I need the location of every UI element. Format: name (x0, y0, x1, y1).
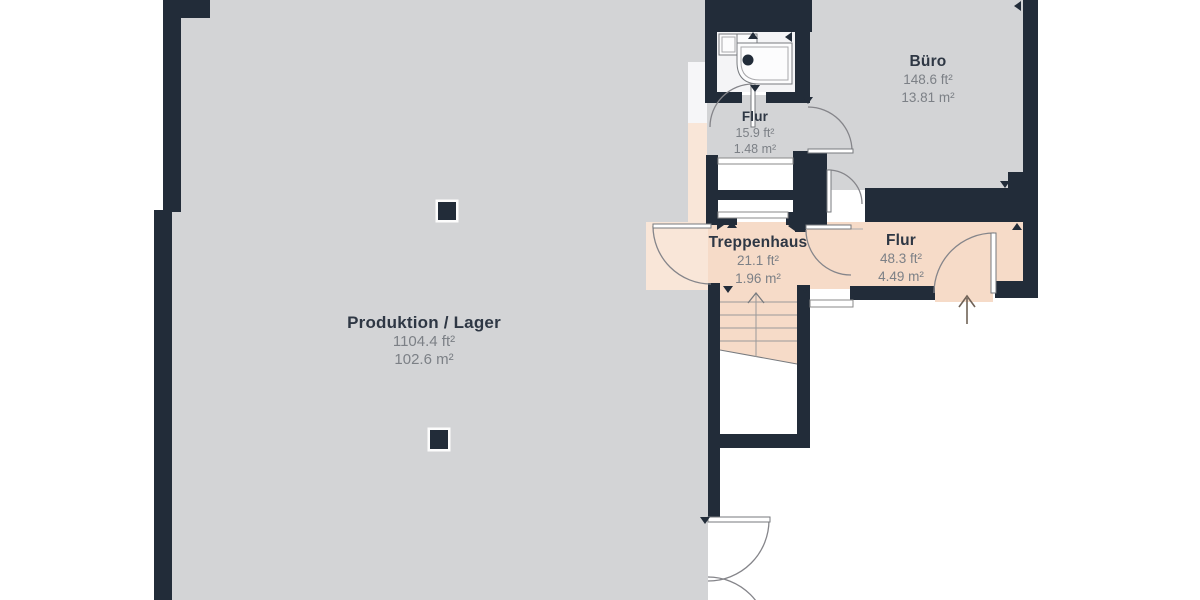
wall-marker-icon (1012, 223, 1022, 230)
room-area-m: 1.96 m² (709, 270, 808, 288)
wall-marker-icon (717, 220, 724, 230)
wall-marker-icon (1011, 283, 1018, 293)
wall-marker-icon (750, 85, 760, 92)
plan-graphics (0, 0, 1200, 600)
door-arc-entrance (934, 233, 994, 293)
door-arc-treppenhaus-flur (806, 230, 851, 275)
room-label-produktion: Produktion / Lager 1104.4 ft² 102.6 m² (347, 312, 501, 369)
room-label-treppenhaus: Treppenhaus 21.1 ft² 1.96 m² (709, 233, 808, 288)
room-name: Flur (878, 231, 924, 250)
wall-marker-icon (1000, 181, 1010, 188)
drain-icon (743, 55, 754, 66)
room-label-flur-top: Flur 15.9 ft² 1.48 m² (734, 109, 776, 157)
room-name: Büro (901, 52, 954, 71)
stairs (720, 286, 797, 434)
room-area-m: 4.49 m² (878, 268, 924, 286)
wall-marker-icon (748, 32, 758, 39)
wall-marker-icon (727, 221, 737, 228)
room-name: Flur (734, 109, 776, 125)
entrance-arrow-icon (959, 296, 975, 324)
floor-plan: Produktion / Lager 1104.4 ft² 102.6 m² B… (0, 0, 1200, 600)
wall-marker-icon (803, 97, 813, 104)
room-name: Produktion / Lager (347, 312, 501, 333)
room-label-flur-right: Flur 48.3 ft² 4.49 m² (878, 231, 924, 286)
wall-marker-icon (788, 221, 795, 231)
room-area-ft: 15.9 ft² (734, 125, 776, 141)
door-arc-buero-flur (828, 170, 862, 204)
wall-marker-icon (1014, 1, 1021, 11)
door-arc-treppenhaus-produktion (653, 226, 711, 284)
door-arc-double-door-upper (708, 520, 769, 581)
room-area-ft: 21.1 ft² (709, 252, 808, 270)
wall-marker-icon (700, 517, 710, 524)
room-area-m: 102.6 m² (347, 351, 501, 369)
wall-marker-icon (708, 32, 715, 42)
wall-marker-icon (785, 32, 792, 42)
room-name: Treppenhaus (709, 233, 808, 252)
room-area-m: 13.81 m² (901, 89, 954, 107)
bathroom-fixtures (719, 34, 792, 84)
room-label-buero: Büro 148.6 ft² 13.81 m² (901, 52, 954, 107)
room-area-ft: 148.6 ft² (901, 71, 954, 89)
room-area-m: 1.48 m² (734, 141, 776, 157)
door-arc-buero-entry (808, 107, 852, 151)
room-area-ft: 1104.4 ft² (347, 333, 501, 351)
room-area-ft: 48.3 ft² (878, 250, 924, 268)
